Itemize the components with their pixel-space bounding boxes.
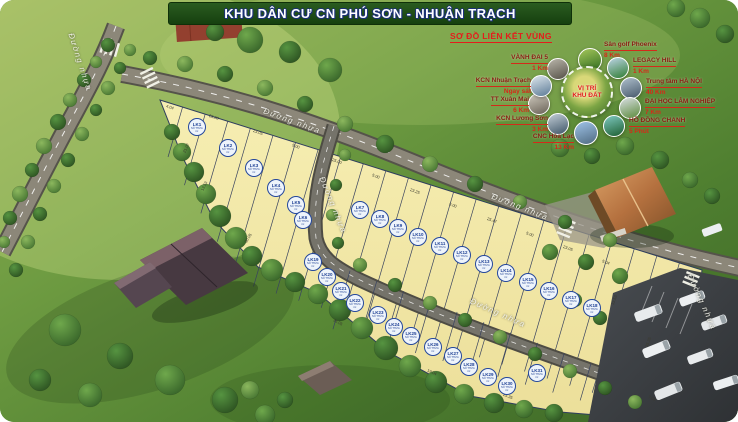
plot-area: m²: [570, 303, 573, 306]
plot-marker: LK7SỐ THỬAm²: [351, 201, 369, 219]
region-link-item-distance: 40 Km: [646, 89, 666, 97]
region-link-diagram-title: SƠ ĐỒ LIÊN KẾT VÙNG: [450, 31, 552, 43]
region-link-item-distance: 5 Phút: [629, 128, 649, 136]
plot-marker: LK24SỐ THỬAm²: [385, 318, 403, 336]
plot-marker: LK1SỐ THỬAm²: [188, 118, 206, 136]
plot-marker: LK4SỐ THỬAm²: [267, 179, 285, 197]
region-link-item-name: CNC Hòa Lạc: [533, 133, 574, 143]
region-link-item-name: KCN Lương Sơn: [496, 115, 548, 125]
plot-area: m²: [439, 249, 442, 252]
plot-area: m²: [379, 222, 382, 225]
region-link-item-distance: 7 Km: [645, 109, 661, 117]
site-location-label-line1: VỊ TRÍ: [578, 85, 596, 92]
plot-area: m²: [196, 130, 199, 133]
region-link-item: Trung tâm HÀ NỘI40 Km: [646, 78, 734, 97]
plot-marker: LK23SỐ THỬAm²: [369, 306, 387, 324]
region-link-item: ĐẠI HỌC LÂM NGHIỆP7 Km: [645, 98, 738, 117]
plot-area: m²: [312, 265, 315, 268]
plot-area: m²: [432, 350, 435, 353]
plot-area: m²: [468, 370, 471, 373]
plot-marker: LK3SỐ THỬAm²: [245, 159, 263, 177]
region-link-item-name: Sân golf Phoenix: [604, 41, 657, 51]
plot-area: m²: [326, 280, 329, 283]
luong-son-industrial-photo: [547, 113, 569, 135]
plot-marker: LK27SỐ THỬAm²: [444, 347, 462, 365]
site-location-label-line2: KHU ĐẤT: [572, 92, 601, 99]
plot-marker: LK2SỐ THỬAm²: [219, 139, 237, 157]
page-title: KHU DÂN CƯ CN PHÚ SƠN - NHUẬN TRẠCH: [224, 6, 516, 21]
plot-area: m²: [397, 231, 400, 234]
plot-area: m²: [227, 151, 230, 154]
plot-area: m²: [483, 267, 486, 270]
plot-area: m²: [295, 208, 298, 211]
region-link-item-distance: 3 Km: [532, 126, 548, 134]
region-link-item-distance: 6 Km: [513, 107, 529, 115]
legacy-hill-photo: [607, 57, 629, 79]
plot-marker: LK22SỐ THỬAm²: [346, 294, 364, 312]
plot-area: m²: [505, 276, 508, 279]
plot-area: m²: [275, 191, 278, 194]
plot-area: m²: [393, 330, 396, 333]
plot-marker: LK14SỐ THỬAm²: [497, 264, 515, 282]
plot-marker: LK26SỐ THỬAm²: [424, 338, 442, 356]
region-link-item-name: TT Xuân Mai: [491, 96, 529, 106]
region-link-item-name: VÀNH ĐAI 5: [511, 54, 548, 64]
region-link-item: LEGACY HILL1 Km: [633, 57, 705, 76]
plot-area: m²: [354, 306, 357, 309]
region-link-item-distance: 1 Km: [532, 65, 548, 73]
plot-marker: LK6SỐ THỬAm²: [294, 211, 312, 229]
plot-area: m²: [506, 389, 509, 392]
plot-marker: LK11SỐ THỬAm²: [431, 237, 449, 255]
region-link-item: TT Xuân Mai6 Km: [459, 96, 529, 115]
site-location-circle: VỊ TRÍ KHU ĐẤT: [561, 66, 613, 118]
region-link-item-name: Trung tâm HÀ NỘI: [646, 78, 702, 88]
plot-area: m²: [340, 294, 343, 297]
plot-marker: LK10SỐ THỬAm²: [409, 228, 427, 246]
nhuan-trach-industrial-photo: [530, 75, 552, 97]
lake-photo: [603, 115, 625, 137]
plot-marker: LK20SỐ THỬAm²: [318, 268, 336, 286]
region-link-item: KCN Nhuận TrạchNgay sát: [461, 77, 531, 96]
plot-area: m²: [591, 311, 594, 314]
plot-area: m²: [536, 376, 539, 379]
plot-area: m²: [417, 240, 420, 243]
plot-marker: LK31SỐ THỬAm²: [528, 364, 546, 382]
plot-area: m²: [410, 339, 413, 342]
plot-marker: LK13SỐ THỬAm²: [475, 255, 493, 273]
region-link-item-distance: 8 Km: [604, 52, 620, 60]
plot-area: m²: [359, 213, 362, 216]
site-plan-render: KHU DÂN CƯ CN PHÚ SƠN - NHUẬN TRẠCH SƠ Đ…: [0, 0, 738, 422]
region-link-item-name: KCN Nhuận Trạch: [476, 77, 531, 87]
plot-marker: LK29SỐ THỬAm²: [479, 368, 497, 386]
plot-area: m²: [452, 359, 455, 362]
plot-marker: LK28SỐ THỬAm²: [460, 358, 478, 376]
plot-marker: LK9SỐ THỬAm²: [389, 219, 407, 237]
region-link-item-name: ĐẠI HỌC LÂM NGHIỆP: [645, 98, 715, 108]
region-link-item-name: HỒ ĐỒNG CHANH: [629, 117, 685, 127]
region-link-item: KCN Lương Sơn3 Km: [478, 115, 548, 134]
region-link-item-distance: 1 Km: [633, 68, 649, 76]
plot-marker: LK12SỐ THỬAm²: [453, 246, 471, 264]
site-title-banner: KHU DÂN CƯ CN PHÚ SƠN - NHUẬN TRẠCH: [168, 2, 572, 25]
plot-area: m²: [377, 318, 380, 321]
plot-area: m²: [548, 294, 551, 297]
plot-marker: LK30SỐ THỬAm²: [498, 377, 516, 395]
plot-marker: LK25SỐ THỬAm²: [402, 327, 420, 345]
region-link-item-distance: 13 Km: [554, 144, 574, 152]
region-link-item: CNC Hòa Lạc13 Km: [508, 133, 574, 152]
plot-marker: LK19SỐ THỬAm²: [304, 253, 322, 271]
region-link-item: HỒ ĐỒNG CHANH5 Phút: [629, 117, 711, 136]
region-link-item: VÀNH ĐAI 51 Km: [478, 54, 548, 73]
region-link-item-name: LEGACY HILL: [633, 57, 676, 67]
hoa-lac-photo: [574, 121, 598, 145]
plot-marker: LK18SỐ THỬAm²: [583, 299, 601, 317]
plot-area: m²: [527, 285, 530, 288]
plot-area: m²: [487, 380, 490, 383]
plot-area: m²: [461, 258, 464, 261]
plot-area: m²: [302, 223, 305, 226]
region-link-item-distance: Ngay sát: [504, 88, 531, 96]
plot-area: m²: [253, 171, 256, 174]
plot-marker: LK15SỐ THỬAm²: [519, 273, 537, 291]
hanoi-skyline-photo: [620, 77, 642, 99]
plot-marker: LK8SỐ THỬAm²: [371, 210, 389, 228]
university-photo: [619, 97, 641, 119]
plot-marker: LK16SỐ THỬAm²: [540, 282, 558, 300]
plot-marker: LK17SỐ THỬAm²: [562, 291, 580, 309]
